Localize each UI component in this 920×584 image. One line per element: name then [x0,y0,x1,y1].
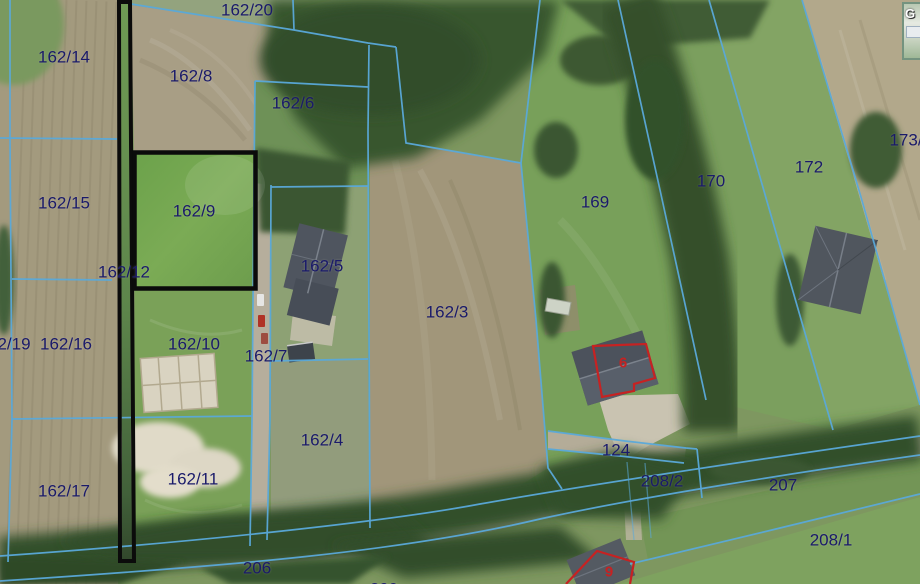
parcel-162-9-fill[interactable] [136,154,265,287]
overview-inset[interactable]: G [902,2,920,60]
inset-watermark: G [905,6,915,21]
inset-thumbnail [906,26,920,38]
map-canvas[interactable]: 162/14162/20162/8162/6173/172170169162/1… [0,0,920,584]
aerial-map-svg [0,0,920,584]
